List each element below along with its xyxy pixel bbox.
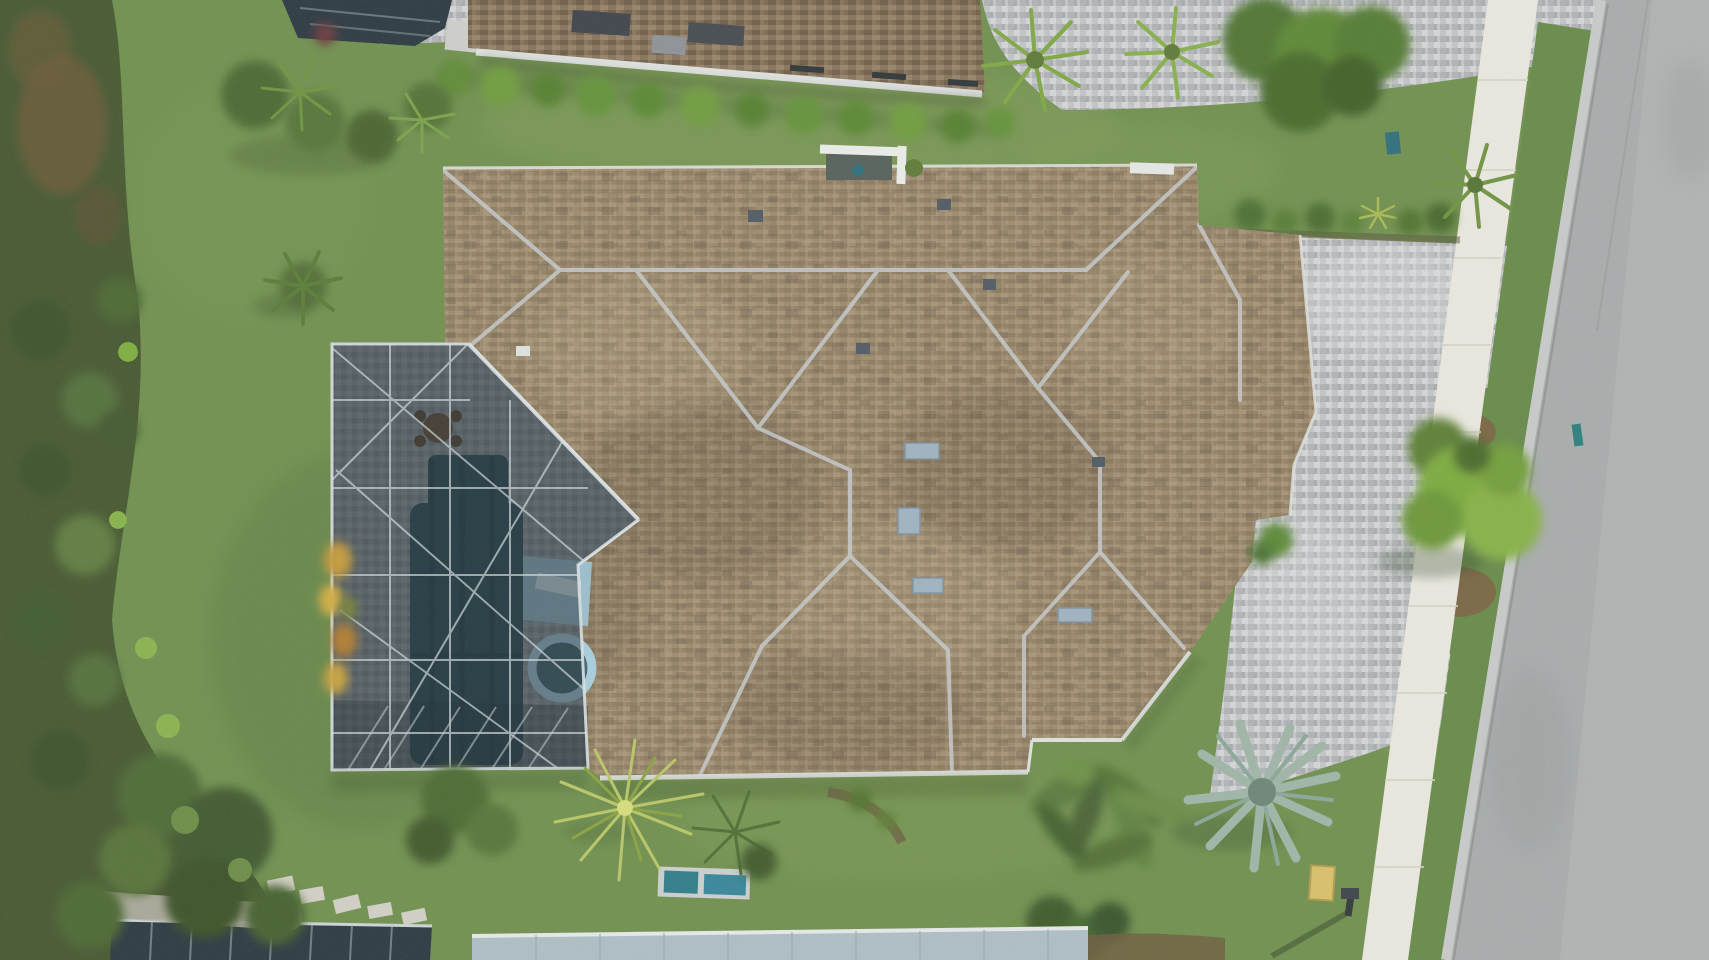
- utility-marker-teal: [1385, 131, 1401, 154]
- neighbor-skylight: [687, 22, 744, 46]
- roof-edge-vent-white: [1130, 162, 1174, 175]
- utility-box-yellow: [1309, 865, 1335, 901]
- courtyard-bush: [905, 159, 923, 177]
- aerial-photo-canvas: [0, 0, 1709, 960]
- neighbor-skylight: [571, 10, 630, 36]
- roof-vent-white: [516, 346, 530, 356]
- bottom-neighbor-metal-roof: [472, 928, 1088, 960]
- ac-equipment-pad: [658, 866, 751, 899]
- courtyard-fountain: [852, 164, 864, 176]
- neighbor-red-bush: [314, 23, 336, 45]
- aerial-photo: [0, 0, 1709, 960]
- neighbor-roof-vent-panel: [651, 35, 686, 55]
